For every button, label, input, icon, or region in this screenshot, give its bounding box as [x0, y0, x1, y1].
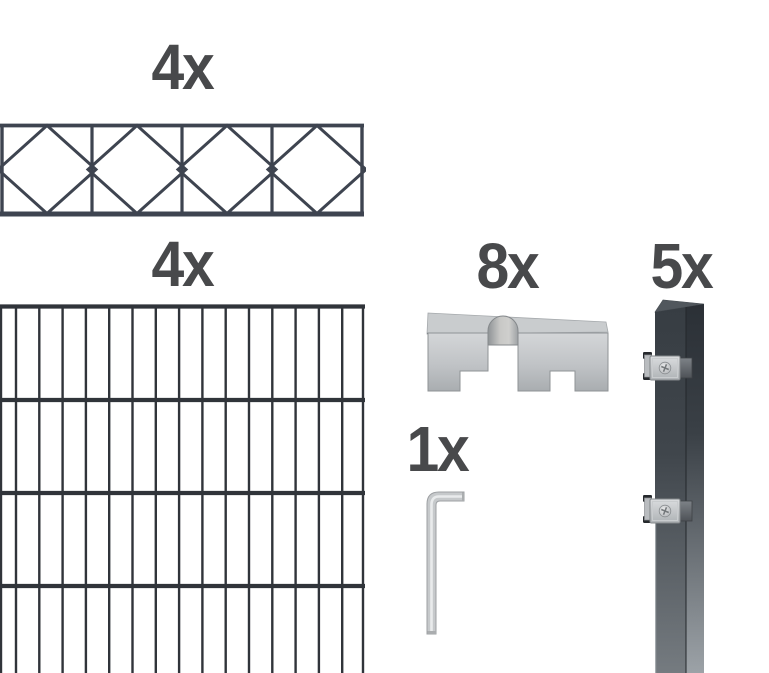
hex-key-quantity-label: 1x: [391, 417, 483, 481]
panel-connector-clamp-illustration: [420, 295, 615, 400]
fence-kit-product-image: 4x 4x 8x 1x 5x: [0, 0, 769, 673]
mesh-fence-panel-illustration: [0, 304, 366, 673]
allen-key-illustration: [418, 486, 478, 641]
decor-panel-quantity-label: 4x: [136, 35, 228, 99]
vertical-bars: [1, 306, 363, 673]
mesh-panel-quantity-label: 4x: [136, 232, 228, 296]
post-quantity-label: 5x: [635, 234, 727, 298]
decorative-fence-panel-illustration: [0, 121, 366, 220]
clamp-dome: [488, 316, 518, 345]
fence-post-illustration: [638, 294, 712, 673]
clamp-quantity-label: 8x: [461, 234, 553, 298]
